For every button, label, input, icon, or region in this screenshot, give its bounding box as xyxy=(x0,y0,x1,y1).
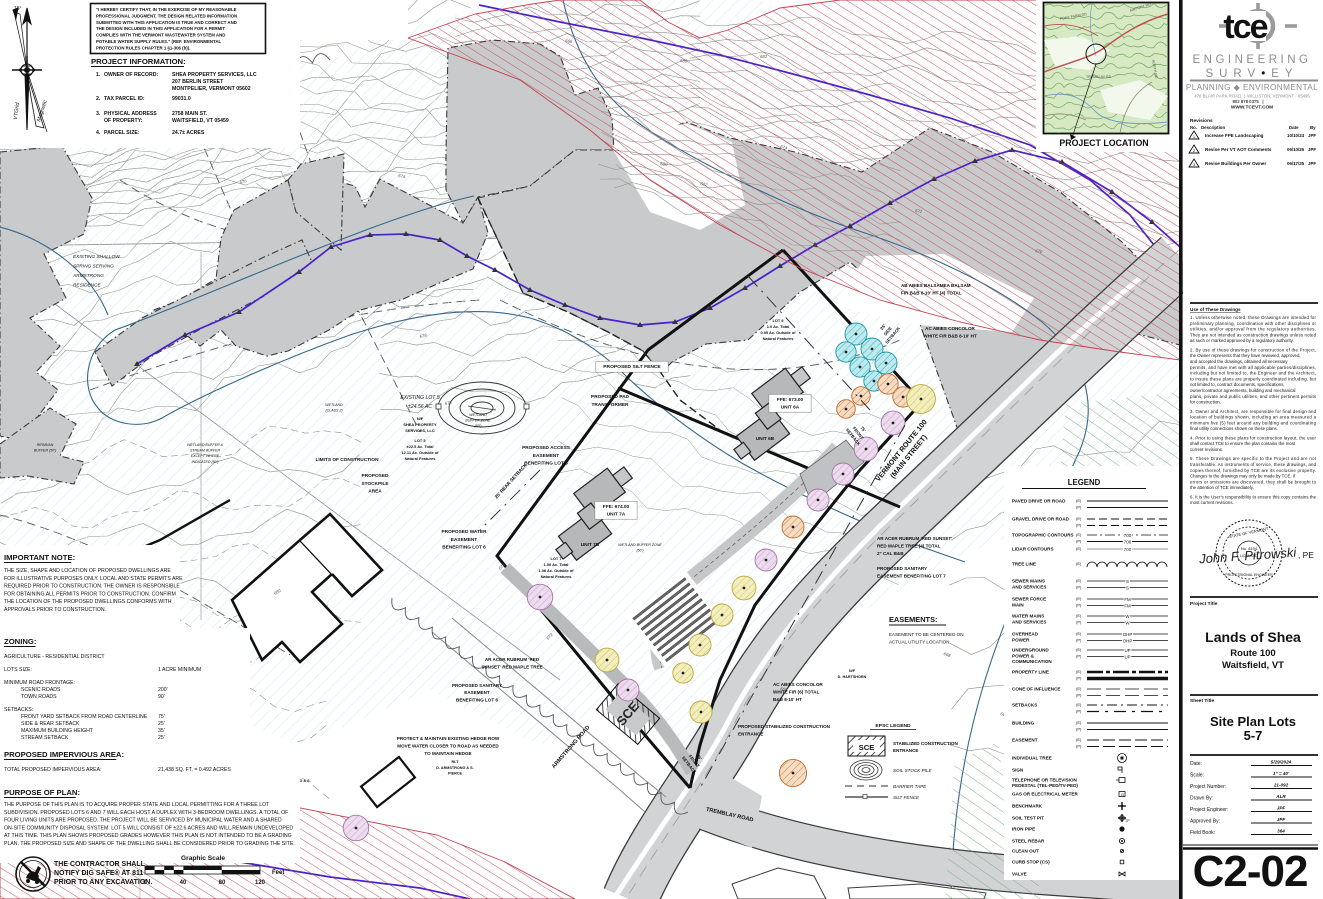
svg-text:PARCEL SIZE:: PARCEL SIZE: xyxy=(104,130,140,136)
svg-text:PROTECT & MAINTAIN EXISTING HE: PROTECT & MAINTAIN EXISTING HEDGE ROW xyxy=(397,736,500,741)
svg-text:FM: FM xyxy=(1124,603,1131,608)
svg-text:PROFESSIONAL JUDGMENT, THE DES: PROFESSIONAL JUDGMENT, THE DESIGN RELATE… xyxy=(96,13,237,18)
svg-text:EASEMENT TO BE CENTERED ON: EASEMENT TO BE CENTERED ON xyxy=(889,632,964,637)
svg-text:LOT 5: LOT 5 xyxy=(414,438,426,443)
svg-text:for construction.: for construction. xyxy=(1190,400,1221,405)
svg-text:1.06 Ac. Outside of: 1.06 Ac. Outside of xyxy=(538,568,574,573)
svg-text:NOTIFY DIG SAFE® AT 811: NOTIFY DIG SAFE® AT 811 xyxy=(54,869,144,877)
svg-text:UNIT 7A: UNIT 7A xyxy=(607,511,626,517)
svg-text:ARMSTRONG: ARMSTRONG xyxy=(72,273,104,279)
svg-text:PROFESSIONAL ENGINEER: PROFESSIONAL ENGINEER xyxy=(1225,573,1273,577)
svg-text:(E): (E) xyxy=(1076,578,1082,583)
svg-text:Drawn By:: Drawn By: xyxy=(1190,796,1213,802)
svg-text:the attention of TCE immediate: the attention of TCE immediately. xyxy=(1190,485,1254,490)
svg-text:Project Engineer:: Project Engineer: xyxy=(1190,807,1228,813)
svg-text:MOVE WATER CLOSER TO ROAD AS N: MOVE WATER CLOSER TO ROAD AS NEEDED xyxy=(397,744,499,749)
svg-text:21-092: 21-092 xyxy=(1273,783,1289,788)
svg-text:207 BERLIN STREET: 207 BERLIN STREET xyxy=(172,79,224,85)
svg-text:(P): (P) xyxy=(1076,620,1082,625)
svg-text:TRANSFORMER: TRANSFORMER xyxy=(592,402,630,408)
svg-text:FOUR LIVING UNITS ARE PROPOSED: FOUR LIVING UNITS ARE PROPOSED. THE PROJ… xyxy=(4,818,282,824)
svg-text:Approved By:: Approved By: xyxy=(1190,819,1220,825)
svg-text:STOCKPILE: STOCKPILE xyxy=(361,481,388,487)
svg-text:(P): (P) xyxy=(1076,523,1082,528)
svg-text:PROPOSED ACCESS: PROPOSED ACCESS xyxy=(522,445,570,451)
svg-text:Use of These Drawings: Use of These Drawings xyxy=(1190,307,1241,312)
svg-text:EXISTING SHALLOW: EXISTING SHALLOW xyxy=(73,254,120,260)
svg-text:700: 700 xyxy=(1124,547,1132,552)
svg-text:shall contact TCE to ensure th: shall contact TCE to ensure the plan con… xyxy=(1190,441,1296,446)
svg-text:IMPORTANT NOTE:: IMPORTANT NOTE: xyxy=(4,553,75,562)
svg-text:BUILDING: BUILDING xyxy=(1012,721,1035,726)
svg-text:06/10/25: 06/10/25 xyxy=(1287,147,1305,152)
svg-text:PURPOSE OF PLAN:: PURPOSE OF PLAN: xyxy=(4,788,80,797)
svg-text:PROPOSED SILT FENCE: PROPOSED SILT FENCE xyxy=(603,364,661,370)
svg-text:ALR: ALR xyxy=(1275,794,1286,799)
svg-text:SUBDIVISION. PROPOSED LOTS 6 A: SUBDIVISION. PROPOSED LOTS 6 AND 7 WILL … xyxy=(4,810,288,816)
svg-text:ACTUAL UTILITY LOCATION.: ACTUAL UTILITY LOCATION. xyxy=(889,640,951,645)
svg-text:MINIMUM ROAD FRONTAGE:: MINIMUM ROAD FRONTAGE: xyxy=(4,680,75,686)
svg-text:POWER: POWER xyxy=(1012,637,1030,642)
svg-text:Revisions: Revisions xyxy=(1190,118,1213,124)
svg-text:LIDAR CONTOURS: LIDAR CONTOURS xyxy=(1012,547,1054,552)
svg-text:N/F: N/F xyxy=(417,416,424,421)
svg-text:permits, and have met with all: permits, and have met with all applicabl… xyxy=(1190,365,1316,370)
svg-text:(E): (E) xyxy=(1076,647,1082,652)
svg-text:1. Unless otherwise noted, the: 1. Unless otherwise noted, these Drawing… xyxy=(1190,315,1317,320)
svg-text:WETLAND: WETLAND xyxy=(325,403,343,407)
svg-text:(E): (E) xyxy=(1076,702,1082,707)
svg-text:including but not limited to,: including but not limited to, the Engine… xyxy=(1190,371,1316,376)
svg-text:(P): (P) xyxy=(1076,693,1082,698)
svg-text:5/29/2024: 5/29/2024 xyxy=(1271,760,1292,765)
svg-text:WAITSFIELD, VT 05459: WAITSFIELD, VT 05459 xyxy=(172,118,229,124)
svg-text:SCENIC ROADS: SCENIC ROADS xyxy=(21,687,61,693)
svg-text:SERVICES, LLC: SERVICES, LLC xyxy=(405,428,435,433)
svg-text:(P): (P) xyxy=(1076,638,1082,643)
svg-text:STREAM BUFFER: STREAM BUFFER xyxy=(190,449,221,453)
svg-text:PROPERTY LINE: PROPERTY LINE xyxy=(1012,670,1049,675)
svg-text:Site Plan Lots: Site Plan Lots xyxy=(1210,714,1296,729)
svg-text:PROPOSED IMPERVIOUS AREA:: PROPOSED IMPERVIOUS AREA: xyxy=(4,750,124,759)
svg-text:SPRING SERVING: SPRING SERVING xyxy=(73,264,114,270)
svg-text:CURB STOP (CS): CURB STOP (CS) xyxy=(1012,860,1050,865)
svg-text:PROPOSED PAD: PROPOSED PAD xyxy=(591,394,629,400)
svg-text:location of buildings shown, i: location of buildings shown, including a… xyxy=(1190,415,1317,420)
svg-text:tce: tce xyxy=(1223,8,1267,46)
svg-text:WHITE FIR B&B 8-10' HT: WHITE FIR B&B 8-10' HT xyxy=(923,333,977,338)
svg-text:35': 35' xyxy=(158,728,165,734)
svg-text:FFE: 674.00: FFE: 674.00 xyxy=(603,504,630,510)
svg-text:AB ABIES BALSAMEA BALSAM: AB ABIES BALSAMEA BALSAM xyxy=(901,283,971,288)
svg-text:06/17/25: 06/17/25 xyxy=(1287,161,1305,166)
svg-text:15°: 15° xyxy=(14,6,22,12)
svg-text:PROPOSED SANITARY: PROPOSED SANITARY xyxy=(877,566,927,571)
svg-text:WETLAND BUFFER ZONE: WETLAND BUFFER ZONE xyxy=(618,543,662,547)
svg-text:as such or marked approved by: as such or marked approved by a regulato… xyxy=(1190,338,1294,343)
svg-text:Natural Features: Natural Features xyxy=(763,336,795,341)
svg-text:STABILIZED CONSTRUCTION: STABILIZED CONSTRUCTION xyxy=(893,741,958,746)
svg-text:AND SERVICES: AND SERVICES xyxy=(1012,619,1046,624)
svg-text:Revise Per VT AOT Comments: Revise Per VT AOT Comments xyxy=(1205,147,1272,152)
svg-text:By: By xyxy=(1310,125,1316,130)
svg-text:0.95 Ac. Outside of: 0.95 Ac. Outside of xyxy=(760,330,796,335)
svg-text:MONTPELIER, VERMONT 05602: MONTPELIER, VERMONT 05602 xyxy=(172,86,251,92)
svg-text:S: S xyxy=(1126,585,1129,590)
svg-text:1" = 40': 1" = 40' xyxy=(1273,771,1290,776)
svg-text:99031.0: 99031.0 xyxy=(172,96,191,102)
svg-text:CLEAN OUT: CLEAN OUT xyxy=(1012,849,1039,854)
svg-text:GRAVEL DRIVE OR ROAD: GRAVEL DRIVE OR ROAD xyxy=(1012,517,1070,522)
svg-text:PROPOSED STABILIZED CONSTRUCTI: PROPOSED STABILIZED CONSTRUCTION xyxy=(738,724,830,729)
svg-text:MAXIMUM BUILDING HEIGHT: MAXIMUM BUILDING HEIGHT xyxy=(21,728,94,734)
svg-text:1.: 1. xyxy=(96,72,101,78)
svg-text:THE SIZE, SHAPE AND LOCATION O: THE SIZE, SHAPE AND LOCATION OF PROPOSED… xyxy=(4,568,171,574)
svg-text:1.06 Ac. Total: 1.06 Ac. Total xyxy=(544,562,569,567)
svg-text:5-7: 5-7 xyxy=(1244,728,1263,743)
svg-text:(E): (E) xyxy=(1076,686,1082,691)
svg-text:TOWN ROADS: TOWN ROADS xyxy=(21,694,57,700)
svg-text:EASEMENT: EASEMENT xyxy=(464,690,490,695)
svg-text:(P): (P) xyxy=(1076,744,1082,749)
svg-text:EASEMENTS:: EASEMENTS: xyxy=(889,615,937,624)
svg-text:BENEFITING LOT 6: BENEFITING LOT 6 xyxy=(442,545,486,551)
svg-text:JPF: JPF xyxy=(1308,161,1316,166)
svg-text:(E): (E) xyxy=(1076,720,1082,725)
svg-text:to insure these plans are prop: to insure these plans are properly coord… xyxy=(1190,376,1317,381)
svg-text:N/F: N/F xyxy=(849,669,856,673)
svg-text:ZONING:: ZONING: xyxy=(4,637,36,646)
svg-text:40: 40 xyxy=(180,880,187,886)
svg-text:APPROVALS PRIOR TO CONSTRUCTIO: APPROVALS PRIOR TO CONSTRUCTION. xyxy=(4,607,106,613)
svg-text:EPSC LEGEND: EPSC LEGEND xyxy=(875,723,911,729)
svg-text:Natural Features: Natural Features xyxy=(405,456,437,461)
svg-text:5. These Drawings are specific: 5. These Drawings are specific to the Pr… xyxy=(1190,456,1317,461)
svg-text:JPF: JPF xyxy=(1308,147,1316,152)
svg-text:(E): (E) xyxy=(1076,532,1082,537)
svg-text:Changes to the drawings may on: Changes to the drawings may only be made… xyxy=(1190,474,1296,479)
svg-text:EASEMENT BENEFITING LOT 7: EASEMENT BENEFITING LOT 7 xyxy=(877,573,946,578)
svg-text:(E): (E) xyxy=(1076,498,1082,503)
svg-text:utilities, and/or approval fro: utilities, and/or approval from the regu… xyxy=(1190,327,1316,332)
svg-text:25': 25' xyxy=(158,721,165,727)
svg-text:THE LOCATION OF THE PROPOSED D: THE LOCATION OF THE PROPOSED DWELLINGS C… xyxy=(4,599,172,605)
svg-text:final utility connections show: final utility connections shown on these… xyxy=(1190,426,1278,431)
svg-text:2" CAL B&B: 2" CAL B&B xyxy=(877,551,904,556)
svg-text:90': 90' xyxy=(158,694,165,700)
svg-text:RLT: RLT xyxy=(452,760,460,764)
svg-text:UNDERGROUND: UNDERGROUND xyxy=(1012,648,1049,653)
svg-text:Feet: Feet xyxy=(272,870,284,876)
svg-text:MAIN: MAIN xyxy=(1012,602,1024,607)
svg-text:RIPARIAN: RIPARIAN xyxy=(37,443,54,447)
svg-text:WATER MAINS: WATER MAINS xyxy=(1012,614,1044,619)
svg-text:TAX PARCEL ID:: TAX PARCEL ID: xyxy=(104,96,145,102)
svg-text:AR ACER RUBRUM 'RED: AR ACER RUBRUM 'RED xyxy=(485,657,540,662)
svg-text:3.: 3. xyxy=(96,111,101,117)
svg-text:transferable. As instruments o: transferable. As instruments of service,… xyxy=(1190,462,1317,467)
svg-text:671: 671 xyxy=(915,208,923,214)
svg-text:SIDE & REAR SETBACK: SIDE & REAR SETBACK xyxy=(21,721,80,727)
svg-text:No.: No. xyxy=(1190,125,1197,130)
svg-text:364: 364 xyxy=(1277,829,1285,834)
svg-text:BENCHMARK: BENCHMARK xyxy=(1012,804,1043,809)
svg-text:FFE: 673.00: FFE: 673.00 xyxy=(777,397,804,403)
svg-text:PIERCE: PIERCE xyxy=(448,772,462,776)
svg-text:SCE: SCE xyxy=(859,743,875,752)
svg-text:BENEFITING LOT 6: BENEFITING LOT 6 xyxy=(524,461,568,467)
svg-text:±22.5 Ac. Total: ±22.5 Ac. Total xyxy=(407,444,434,449)
svg-text:OHP: OHP xyxy=(1123,638,1133,643)
svg-text:AT THIS TIME. THIS PLAN SHOWS: AT THIS TIME. THIS PLAN SHOWS PROPOSED G… xyxy=(4,833,292,839)
svg-text:2758 MAIN ST.: 2758 MAIN ST. xyxy=(172,111,208,117)
svg-text:copies thereof, furnished by T: copies thereof, furnished by TCE are its… xyxy=(1190,468,1316,473)
svg-text:2. By use of these drawings fo: 2. By use of these drawings for construc… xyxy=(1190,347,1316,352)
svg-text:INDICATED (50'): INDICATED (50') xyxy=(192,460,219,464)
svg-text:12.11 Ac. Outside of: 12.11 Ac. Outside of xyxy=(402,450,440,455)
svg-text:BENEFITING LOT 6: BENEFITING LOT 6 xyxy=(456,697,498,702)
svg-text:PRIOR TO ANY EXCAVATION.: PRIOR TO ANY EXCAVATION. xyxy=(54,879,152,886)
svg-text:POTABLE WATER SUPPLY RULES." (: POTABLE WATER SUPPLY RULES." (REF. ENVIR… xyxy=(96,39,221,44)
svg-text:(50'): (50') xyxy=(636,549,643,553)
svg-text:SEWER MAINS: SEWER MAINS xyxy=(1012,579,1045,584)
svg-text:(E): (E) xyxy=(1076,631,1082,636)
svg-text:OF PROPERTY:: OF PROPERTY: xyxy=(104,118,143,124)
svg-text:FIR B&B 8-10' HT (4) TOTAL: FIR B&B 8-10' HT (4) TOTAL xyxy=(901,290,962,295)
svg-text:OWNER OF RECORD:: OWNER OF RECORD: xyxy=(104,72,158,78)
svg-text:They are not intended as const: They are not intended as construction dr… xyxy=(1190,332,1317,337)
svg-text:PHYSICAL ADDRESS: PHYSICAL ADDRESS xyxy=(104,111,157,117)
svg-text:Project Title: Project Title xyxy=(1190,601,1218,607)
svg-text:POWER &: POWER & xyxy=(1012,653,1035,658)
svg-text:(P): (P) xyxy=(1076,603,1082,608)
svg-text:6. It is the User's responsibi: 6. It is the User's responsibility to en… xyxy=(1190,494,1317,499)
svg-text:GAS OR ELECTRICAL METER: GAS OR ELECTRICAL METER xyxy=(1012,792,1078,797)
svg-text:COMPLIES WITH THE VERMONT WAST: COMPLIES WITH THE VERMONT WASTEWATER SYS… xyxy=(96,33,225,38)
svg-text:21,438 SQ. FT. = 0.492 ACRES: 21,438 SQ. FT. = 0.492 ACRES xyxy=(158,767,231,773)
svg-text:RESIDENCE: RESIDENCE xyxy=(73,283,102,289)
svg-text:JPF: JPF xyxy=(1277,817,1286,822)
svg-text:FRONT YARD SETBACK FROM ROAD C: FRONT YARD SETBACK FROM ROAD CENTERLINE xyxy=(21,714,148,720)
svg-text:25': 25' xyxy=(158,735,165,741)
svg-text:(P): (P) xyxy=(1076,585,1082,590)
svg-text:AC ABIES CONCOLOR: AC ABIES CONCOLOR xyxy=(925,326,975,331)
svg-text:WETLAND: WETLAND xyxy=(469,413,487,417)
svg-text:ENTRANCE: ENTRANCE xyxy=(738,731,763,736)
svg-text:SEWER FORCE: SEWER FORCE xyxy=(1012,597,1046,602)
svg-text:current revisions.: current revisions. xyxy=(1190,447,1223,452)
svg-text:(P): (P) xyxy=(1076,654,1082,659)
svg-text:SUBMITTED WITH THIS APPLICATIO: SUBMITTED WITH THIS APPLICATION IS TRUE … xyxy=(96,20,237,25)
svg-text:plans, private and public util: plans, private and public utilities, and… xyxy=(1190,394,1317,399)
svg-text:, PE: , PE xyxy=(1298,550,1314,560)
svg-text:ENGINEERING: ENGINEERING xyxy=(1192,54,1311,66)
svg-text:LIMITS OF CONSTRUCTION: LIMITS OF CONSTRUCTION xyxy=(315,457,379,463)
svg-text:FOR ILLUSTRATIVE PURPOSES ONLY: FOR ILLUSTRATIVE PURPOSES ONLY. LOCAL AN… xyxy=(4,576,183,582)
svg-text:120: 120 xyxy=(255,880,266,886)
svg-text:2.: 2. xyxy=(96,96,101,102)
svg-text:(P): (P) xyxy=(1076,676,1082,681)
svg-text:THE DESIGN INCLUDED IN THIS AP: THE DESIGN INCLUDED IN THIS APPLICATION … xyxy=(96,26,225,31)
svg-text:PROPOSED SANITARY: PROPOSED SANITARY xyxy=(452,683,502,688)
svg-text:ON-SITE COMMUNITY DISPOSAL SYS: ON-SITE COMMUNITY DISPOSAL SYSTEM. LOT 5… xyxy=(4,825,293,831)
svg-text:PEDESTAL (TEL-PED/TV-PED): PEDESTAL (TEL-PED/TV-PED) xyxy=(1012,783,1078,788)
svg-text:Project Number:: Project Number: xyxy=(1190,784,1226,790)
svg-text:(CLASS 2): (CLASS 2) xyxy=(325,409,342,413)
svg-text:PLAN. THE PROPOSED SIZE AND SH: PLAN. THE PROPOSED SIZE AND SHAPE OF THE… xyxy=(4,841,295,847)
svg-text:AREA: AREA xyxy=(368,489,382,495)
svg-text:UNIT 7B: UNIT 7B xyxy=(581,542,600,548)
svg-text:TOPOGRAPHIC CONTOURS: TOPOGRAPHIC CONTOURS xyxy=(1012,533,1074,538)
svg-text:G: G xyxy=(1121,792,1124,797)
svg-text:BUFFER ZONE: BUFFER ZONE xyxy=(465,419,491,423)
svg-text:UNIT 6A: UNIT 6A xyxy=(781,404,800,410)
svg-text:LOT 7: LOT 7 xyxy=(550,556,561,561)
svg-text:errors or omissions are discov: errors or omissions are discovered, they… xyxy=(1190,479,1317,484)
svg-text:Description: Description xyxy=(1201,125,1225,130)
svg-text:Date:: Date: xyxy=(1190,761,1202,767)
svg-text:EASEMENT: EASEMENT xyxy=(533,453,559,459)
svg-text:STEEL REBAR: STEEL REBAR xyxy=(1012,839,1045,844)
svg-text:WETLAND BUFFER &: WETLAND BUFFER & xyxy=(187,443,224,447)
svg-text:TP: TP xyxy=(1125,819,1130,823)
svg-text:B&B 8-10' HT: B&B 8-10' HT xyxy=(773,697,802,702)
svg-text:Waitsfield, VT: Waitsfield, VT xyxy=(1222,660,1284,671)
svg-text:802 878 0375 |: 802 878 0375 | xyxy=(1232,99,1263,104)
svg-text:TOTAL PROPOSED IMPERVIOUS AREA: TOTAL PROPOSED IMPERVIOUS AREA: xyxy=(4,767,102,773)
svg-text:ENTRANCE: ENTRANCE xyxy=(893,748,918,753)
svg-text:UP: UP xyxy=(1124,648,1130,653)
svg-text:CONE OF INFLUENCE: CONE OF INFLUENCE xyxy=(1012,687,1061,692)
svg-text:PROPOSED WATER: PROPOSED WATER xyxy=(441,529,487,535)
svg-text:200': 200' xyxy=(158,687,168,693)
svg-text:LEGEND: LEGEND xyxy=(1068,478,1101,487)
svg-text:SETBACKS:: SETBACKS: xyxy=(4,707,33,713)
svg-text:SIGN: SIGN xyxy=(1012,768,1024,773)
svg-text:PROPOSED: PROPOSED xyxy=(362,473,389,479)
svg-text:(E): (E) xyxy=(1076,669,1082,674)
svg-text:SETBACKS: SETBACKS xyxy=(1012,703,1037,708)
svg-text:Revise Buildings Per Owner: Revise Buildings Per Owner xyxy=(1205,161,1266,166)
svg-text:PAVED DRIVE OR ROAD: PAVED DRIVE OR ROAD xyxy=(1012,499,1066,504)
svg-text:4. Prior to using these plans: 4. Prior to using these plans for constr… xyxy=(1190,435,1317,440)
svg-text:LOTS SIZE:: LOTS SIZE: xyxy=(4,667,32,673)
svg-text:most current revisions.: most current revisions. xyxy=(1190,500,1234,505)
svg-text:SHEA PROPERTY SERVICES, LLC: SHEA PROPERTY SERVICES, LLC xyxy=(172,72,257,78)
svg-text:AGRICULTURE - RESIDENTIAL DIST: AGRICULTURE - RESIDENTIAL DISTRICT xyxy=(4,654,105,660)
svg-text:Date: Date xyxy=(1289,125,1299,130)
svg-text:TREE LINE: TREE LINE xyxy=(1012,562,1036,567)
svg-text:(E): (E) xyxy=(1076,613,1082,618)
svg-text:±24.56 AC: ±24.56 AC xyxy=(408,404,432,410)
svg-text:SOIL TEST PIT: SOIL TEST PIT xyxy=(1012,816,1044,821)
svg-text:(E): (E) xyxy=(1076,561,1082,566)
svg-text:REQUIRED PRIOR TO CONSTRUCTION: REQUIRED PRIOR TO CONSTRUCTION. THE OWNE… xyxy=(4,584,180,590)
svg-text:(P): (P) xyxy=(1076,709,1082,714)
svg-text:THE PURPOSE OF THIS PLAN IS TO: THE PURPOSE OF THIS PLAN IS TO ACQUIRE P… xyxy=(4,802,270,808)
svg-text:3. Owner and Architect, are re: 3. Owner and Architect, are responsible … xyxy=(1190,409,1317,414)
svg-text:10/10/24: 10/10/24 xyxy=(1287,133,1305,138)
svg-text:TELEPHONE OR TELEVISION: TELEPHONE OR TELEVISION xyxy=(1012,778,1078,783)
svg-text:RED MAPLE TREE (4) TOTAL: RED MAPLE TREE (4) TOTAL xyxy=(877,543,941,548)
svg-text:UP: UP xyxy=(1124,654,1130,659)
svg-text:Natural Features: Natural Features xyxy=(541,574,573,579)
svg-text:700: 700 xyxy=(1124,533,1132,538)
svg-text:SILT FENCE: SILT FENCE xyxy=(893,795,920,800)
svg-text:SOIL STOCK PILE: SOIL STOCK PILE xyxy=(893,768,932,773)
svg-text:Increase FPE Landscaping: Increase FPE Landscaping xyxy=(1205,133,1264,138)
svg-text:(E): (E) xyxy=(1076,516,1082,521)
svg-text:TO MAINTAIN HEDGE: TO MAINTAIN HEDGE xyxy=(424,751,471,756)
svg-text:75': 75' xyxy=(158,714,165,720)
svg-text:(50'): (50') xyxy=(474,424,481,428)
svg-text:and accepted the drawings, obt: and accepted the drawings, obtained all … xyxy=(1190,359,1288,364)
svg-text:OVERHEAD: OVERHEAD xyxy=(1012,632,1039,637)
svg-text:STREAM SETBACK: STREAM SETBACK xyxy=(21,735,69,741)
svg-text:(P): (P) xyxy=(1076,727,1082,732)
svg-text:S: S xyxy=(1126,579,1129,584)
svg-text:SHEA PROPERTY: SHEA PROPERTY xyxy=(403,422,437,427)
svg-text:EXCEPT WHERE: EXCEPT WHERE xyxy=(191,454,220,458)
svg-text:680: 680 xyxy=(680,58,688,64)
svg-text:Lands of Shea: Lands of Shea xyxy=(1205,629,1301,645)
svg-text:PLANNING ◆ ENVIRONMENTAL: PLANNING ◆ ENVIRONMENTAL xyxy=(1186,83,1318,92)
svg-text:OHP: OHP xyxy=(1123,632,1133,637)
svg-text:LOT 6: LOT 6 xyxy=(772,318,784,323)
svg-text:preliminary planning, coordina: preliminary planning, coordination with … xyxy=(1190,321,1317,326)
svg-text:24.7± ACRES: 24.7± ACRES xyxy=(172,130,205,136)
svg-text:Graphic Scale: Graphic Scale xyxy=(181,855,225,862)
svg-text:476 BLAIR PARK ROAD | WILLIS: 476 BLAIR PARK ROAD | WILLISTON, VERMONT… xyxy=(1194,94,1310,99)
svg-text:PROJECT LOCATION: PROJECT LOCATION xyxy=(1059,138,1148,148)
svg-text:owner/contractor agreements, b: owner/contractor agreements, building an… xyxy=(1190,388,1296,393)
svg-text:(E): (E) xyxy=(1076,596,1082,601)
svg-text:EXISTING LOT 5: EXISTING LOT 5 xyxy=(400,395,440,401)
svg-text:682: 682 xyxy=(760,54,768,59)
svg-text:TREMBLAY RD: TREMBLAY RD xyxy=(1086,75,1112,79)
svg-text:AND SERVICES: AND SERVICES xyxy=(1012,584,1046,589)
svg-text:JPF: JPF xyxy=(1277,806,1286,811)
svg-text:D. HARTSHORN: D. HARTSHORN xyxy=(838,675,867,679)
svg-text:INDIVIDUAL TREE: INDIVIDUAL TREE xyxy=(1012,756,1052,761)
svg-text:C2-02: C2-02 xyxy=(1193,847,1308,896)
svg-text:(P): (P) xyxy=(1076,539,1082,544)
svg-text:not limited to, contract docum: not limited to, contract documents, spec… xyxy=(1190,382,1285,387)
svg-text:THE CONTRACTOR SHALL: THE CONTRACTOR SHALL xyxy=(54,861,146,868)
svg-text:IRON PIPE: IRON PIPE xyxy=(1012,827,1035,832)
svg-text:"I HEREBY CERTIFY THAT, IN THE: "I HEREBY CERTIFY THAT, IN THE EXERCISE … xyxy=(96,7,237,12)
svg-text:JPF: JPF xyxy=(1308,133,1316,138)
svg-text:Field Book:: Field Book: xyxy=(1190,830,1215,836)
svg-text:SUNSET' RED MAPLE TREE: SUNSET' RED MAPLE TREE xyxy=(481,664,542,669)
svg-text:BUFFER (50'): BUFFER (50') xyxy=(34,449,56,453)
svg-text:SURV•EY: SURV•EY xyxy=(1205,68,1298,80)
svg-text:4.: 4. xyxy=(96,130,101,136)
svg-text:Scale:: Scale: xyxy=(1190,773,1204,779)
svg-text:COMMUNICATION: COMMUNICATION xyxy=(1012,659,1052,664)
svg-text:minimum five (5) feet around a: minimum five (5) feet around any buildin… xyxy=(1190,420,1317,425)
svg-text:80: 80 xyxy=(219,880,226,886)
svg-text:666: 666 xyxy=(565,38,573,44)
svg-text:PROJECT INFORMATION:: PROJECT INFORMATION: xyxy=(91,57,186,66)
svg-text:(E): (E) xyxy=(1076,546,1082,551)
svg-text:EASEMENT: EASEMENT xyxy=(451,537,477,543)
svg-text:1 ACRE MINIMUM: 1 ACRE MINIMUM xyxy=(158,667,201,673)
svg-text:UNIT 6B: UNIT 6B xyxy=(756,436,775,442)
svg-text:700: 700 xyxy=(1124,539,1132,544)
svg-text:AR ACER RUBRUM 'RED SUNSET': AR ACER RUBRUM 'RED SUNSET' xyxy=(877,536,952,541)
svg-text:Route 100: Route 100 xyxy=(1230,648,1275,659)
